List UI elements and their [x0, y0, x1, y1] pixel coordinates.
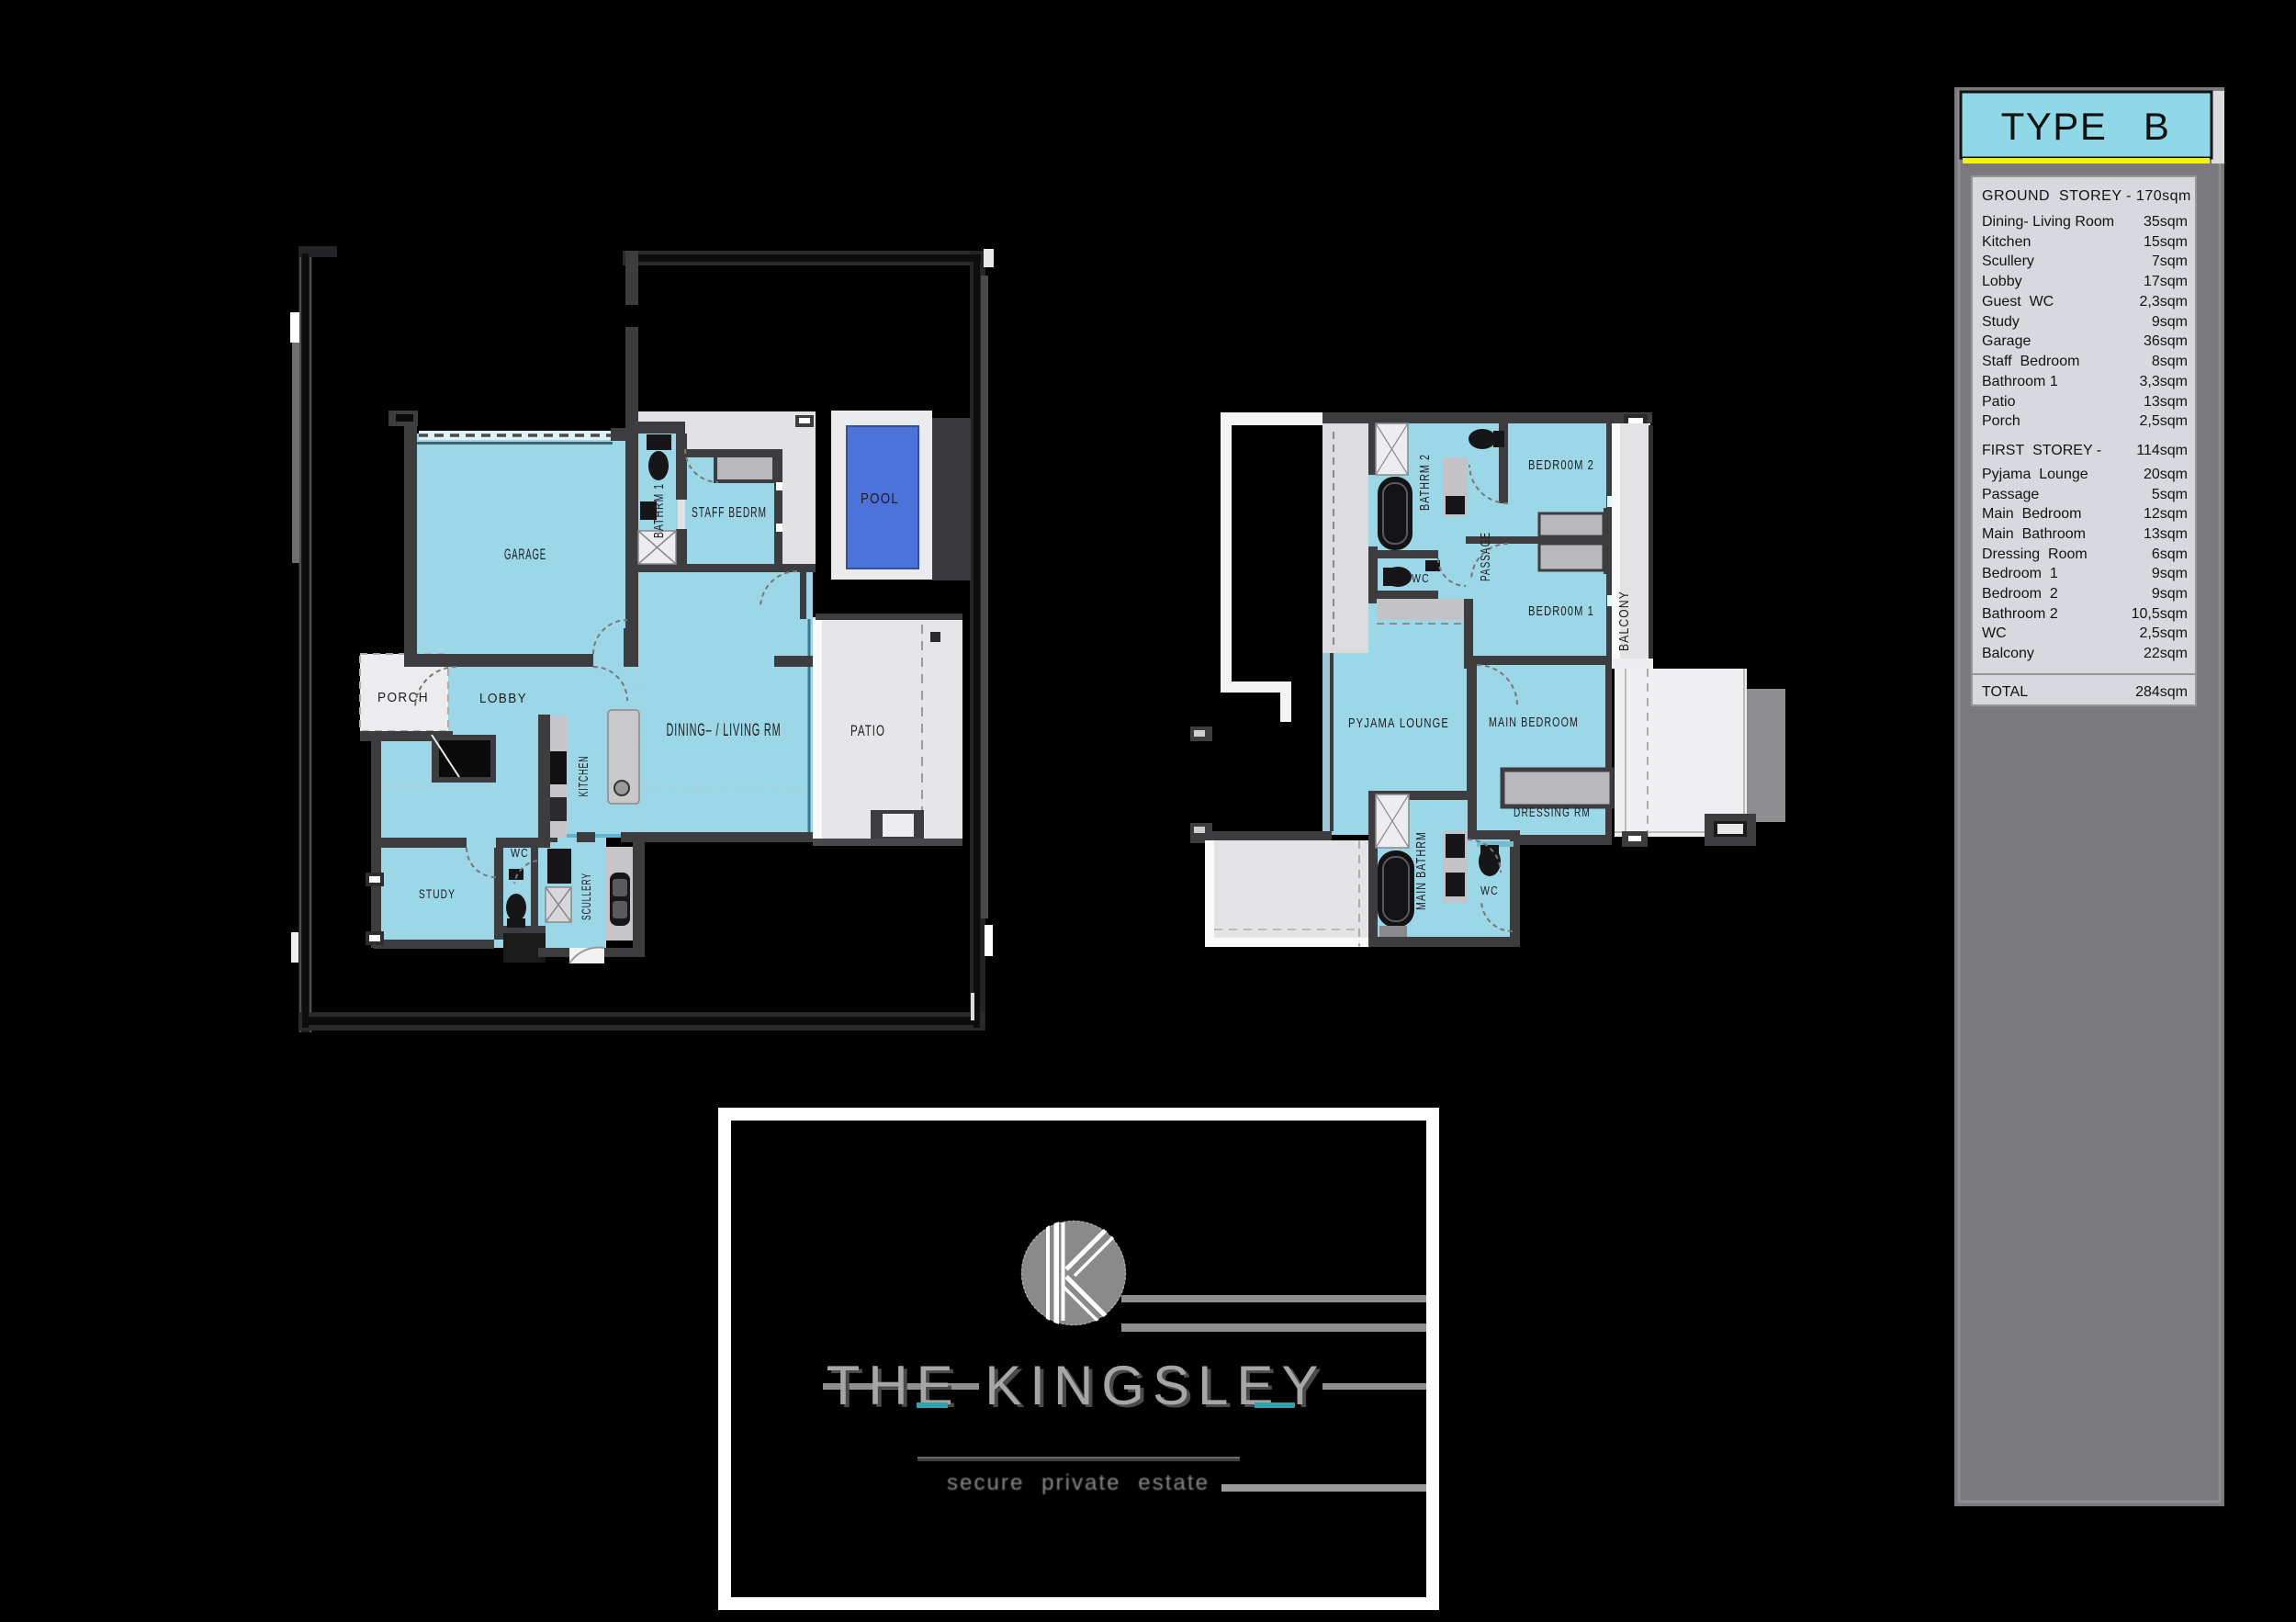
- svg-text:Lobby: Lobby: [1982, 274, 2022, 289]
- svg-text:13sqm: 13sqm: [2144, 526, 2188, 542]
- svg-text:10,5sqm: 10,5sqm: [2132, 606, 2188, 622]
- svg-text:SCULLERY: SCULLERY: [579, 873, 593, 920]
- svg-text:22sqm: 22sqm: [2144, 646, 2188, 661]
- svg-text:3,3sqm: 3,3sqm: [2140, 374, 2188, 389]
- svg-text:8sqm: 8sqm: [2152, 354, 2188, 369]
- svg-text:DRESSING RM: DRESSING RM: [1514, 805, 1591, 819]
- svg-text:35sqm: 35sqm: [2144, 214, 2188, 230]
- svg-text:Balcony: Balcony: [1982, 646, 2034, 661]
- svg-text:PORCH: PORCH: [377, 690, 429, 705]
- svg-text:9sqm: 9sqm: [2152, 314, 2188, 330]
- svg-text:POOL: POOL: [861, 491, 899, 507]
- svg-text:GARAGE: GARAGE: [504, 546, 546, 563]
- svg-text:KITCHEN: KITCHEN: [576, 756, 591, 797]
- svg-text:Pyjama Lounge: Pyjama Lounge: [1982, 467, 2088, 482]
- svg-text:WC: WC: [1480, 884, 1499, 897]
- svg-text:Garage: Garage: [1982, 333, 2031, 349]
- svg-text:Bedroom 1: Bedroom 1: [1982, 566, 2058, 581]
- svg-text:BALCONY: BALCONY: [1616, 591, 1632, 651]
- svg-text:Main Bedroom: Main Bedroom: [1982, 506, 2082, 522]
- svg-text:Bathroom 2: Bathroom 2: [1982, 606, 2058, 622]
- svg-text:Dressing Room: Dressing Room: [1982, 546, 2088, 562]
- svg-text:BEDR00M 2: BEDR00M 2: [1528, 457, 1594, 473]
- svg-text:BEDR00M 1: BEDR00M 1: [1528, 603, 1594, 619]
- svg-text:PASSAGE: PASSAGE: [1478, 532, 1493, 581]
- svg-text:Bedroom 2: Bedroom 2: [1982, 586, 2058, 602]
- svg-text:LOBBY: LOBBY: [479, 691, 527, 706]
- svg-text:6sqm: 6sqm: [2152, 546, 2188, 562]
- svg-text:Staff Bedroom: Staff Bedroom: [1982, 354, 2079, 369]
- svg-text:secure private estate: secure private estate: [947, 1470, 1210, 1495]
- svg-text:15sqm: 15sqm: [2144, 234, 2188, 250]
- svg-text:20sqm: 20sqm: [2144, 467, 2188, 482]
- svg-text:17sqm: 17sqm: [2144, 274, 2188, 289]
- svg-text:12sqm: 12sqm: [2144, 506, 2188, 522]
- svg-text:2,5sqm: 2,5sqm: [2140, 413, 2188, 429]
- svg-text:284sqm: 284sqm: [2135, 684, 2188, 700]
- svg-text:36sqm: 36sqm: [2144, 333, 2188, 349]
- svg-text:Guest WC: Guest WC: [1982, 294, 2054, 310]
- svg-text:STUDY: STUDY: [419, 886, 456, 901]
- svg-text:BATHRM 2: BATHRM 2: [1417, 454, 1433, 511]
- svg-text:2,5sqm: 2,5sqm: [2140, 625, 2188, 641]
- svg-text:FIRST STOREY -: FIRST STOREY -: [1982, 443, 2101, 458]
- svg-text:Passage: Passage: [1982, 487, 2039, 502]
- svg-text:Bathroom 1: Bathroom 1: [1982, 374, 2058, 389]
- svg-text:114sqm: 114sqm: [2136, 443, 2188, 458]
- svg-text:Scullery: Scullery: [1982, 253, 2034, 269]
- svg-text:9sqm: 9sqm: [2152, 566, 2188, 581]
- svg-text:MAIN BATHRM: MAIN BATHRM: [1413, 831, 1429, 910]
- svg-text:Dining- Living Room: Dining- Living Room: [1982, 214, 2114, 230]
- svg-text:Main Bathroom: Main Bathroom: [1982, 526, 2086, 542]
- svg-text:Patio: Patio: [1982, 394, 2016, 410]
- svg-text:PYJAMA LOUNGE: PYJAMA LOUNGE: [1348, 715, 1449, 731]
- svg-text:PATIO: PATIO: [850, 722, 885, 739]
- svg-text:WC: WC: [1982, 625, 2007, 641]
- svg-text:Porch: Porch: [1982, 413, 2020, 429]
- svg-text:DINING– / LIVING RM: DINING– / LIVING RM: [667, 721, 782, 740]
- svg-text:7sqm: 7sqm: [2152, 253, 2188, 269]
- svg-text:GROUND STOREY - 170sqm: GROUND STOREY - 170sqm: [1982, 188, 2191, 204]
- svg-text:TYPE B: TYPE B: [2001, 105, 2171, 148]
- svg-text:STAFF BEDRM: STAFF BEDRM: [692, 505, 767, 521]
- svg-text:9sqm: 9sqm: [2152, 586, 2188, 602]
- svg-text:WC: WC: [1412, 571, 1430, 585]
- svg-text:Kitchen: Kitchen: [1982, 234, 2031, 250]
- svg-text:WC: WC: [511, 846, 529, 860]
- svg-text:13sqm: 13sqm: [2144, 394, 2188, 410]
- svg-text:5sqm: 5sqm: [2152, 487, 2188, 502]
- svg-text:MAIN BEDROOM: MAIN BEDROOM: [1489, 715, 1579, 730]
- svg-text:2,3sqm: 2,3sqm: [2140, 294, 2188, 310]
- svg-text:Study: Study: [1982, 314, 2020, 330]
- svg-text:TOTAL: TOTAL: [1982, 684, 2028, 700]
- svg-text:BATHRM 1: BATHRM 1: [651, 483, 667, 538]
- svg-text:THE KINGSLEY: THE KINGSLEY: [827, 1355, 1327, 1416]
